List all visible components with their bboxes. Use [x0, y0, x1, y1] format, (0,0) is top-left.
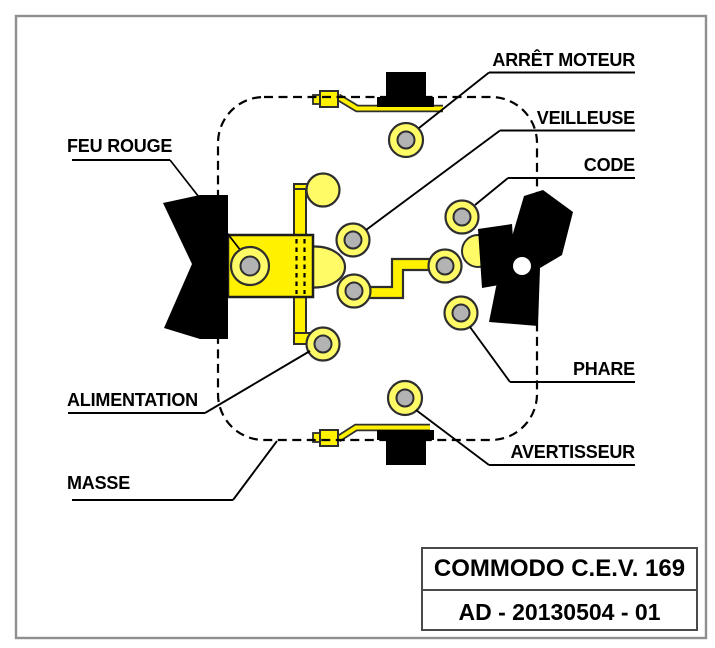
- label-code: CODE: [584, 155, 635, 175]
- horn-button-flange: [377, 430, 434, 440]
- left-lever: [163, 195, 228, 339]
- label-masse: MASSE: [67, 473, 130, 493]
- terminal-mid-right: [429, 250, 462, 283]
- label-arret-moteur: ARRÊT MOTEUR: [492, 50, 635, 70]
- diagram-stage: FEU ROUGE ARRÊT MOTEUR VEILLEUSE CODE PH…: [0, 0, 715, 648]
- terminal-veilleuse: [337, 224, 370, 257]
- label-veilleuse: VEILLEUSE: [537, 108, 635, 128]
- engine-stop-button-flange: [377, 97, 434, 107]
- terminal-feu-rouge: [231, 247, 269, 285]
- title-block-name: COMMODO C.E.V. 169: [423, 549, 696, 591]
- terminal-arret-moteur: [389, 123, 423, 157]
- title-block-reference: AD - 20130504 - 01: [423, 591, 696, 633]
- engine-stop-button-cap: [386, 72, 426, 98]
- label-avertisseur: AVERTISSEUR: [511, 442, 636, 462]
- right-lever-pivot-hole: [513, 257, 531, 275]
- bottom-connector-body: [320, 430, 338, 446]
- lower-strap: [294, 294, 306, 335]
- top-connector-body: [320, 91, 338, 107]
- terminal-alimentation: [307, 328, 340, 361]
- horn-button-cap: [386, 440, 426, 465]
- terminal-code: [446, 201, 479, 234]
- label-phare: PHARE: [573, 359, 635, 379]
- terminal-mid-left: [338, 275, 371, 308]
- upper-strap: [294, 189, 306, 239]
- label-feu-rouge: FEU ROUGE: [67, 136, 172, 156]
- label-alimentation: ALIMENTATION: [67, 390, 198, 410]
- title-block: COMMODO C.E.V. 169 AD - 20130504 - 01: [421, 547, 698, 631]
- pivot-disc: [307, 174, 340, 207]
- terminal-phare: [445, 297, 478, 330]
